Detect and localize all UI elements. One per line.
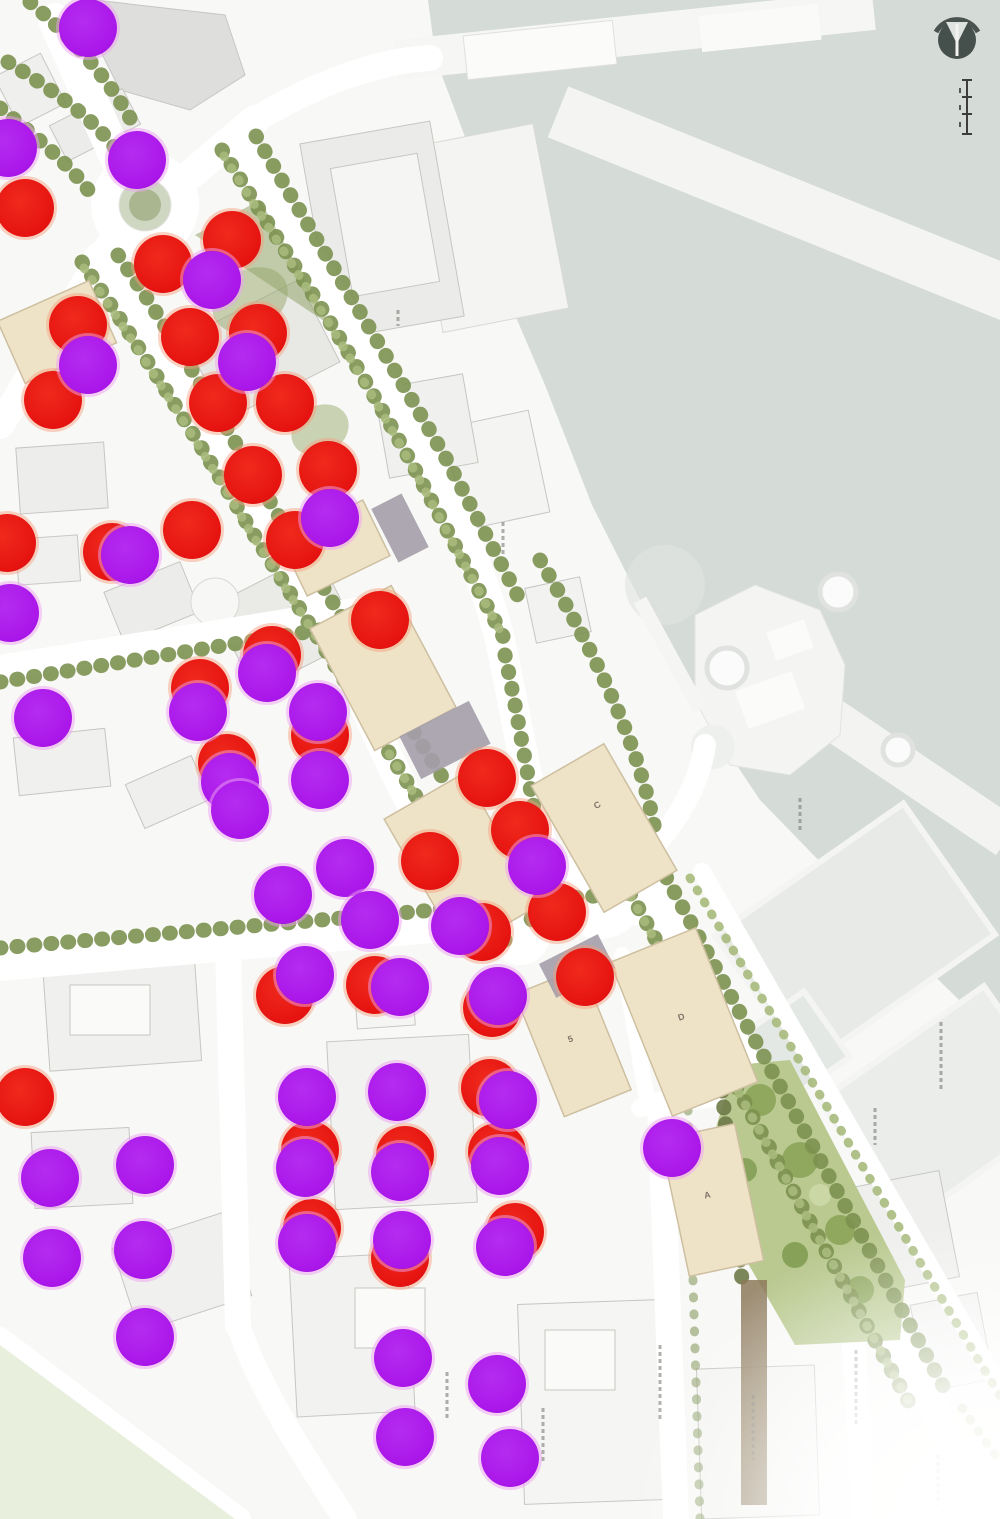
base-map-art — [0, 0, 1000, 1519]
map-fade — [600, 1200, 1000, 1519]
site-plan-map: C5DA — [0, 0, 1000, 1519]
